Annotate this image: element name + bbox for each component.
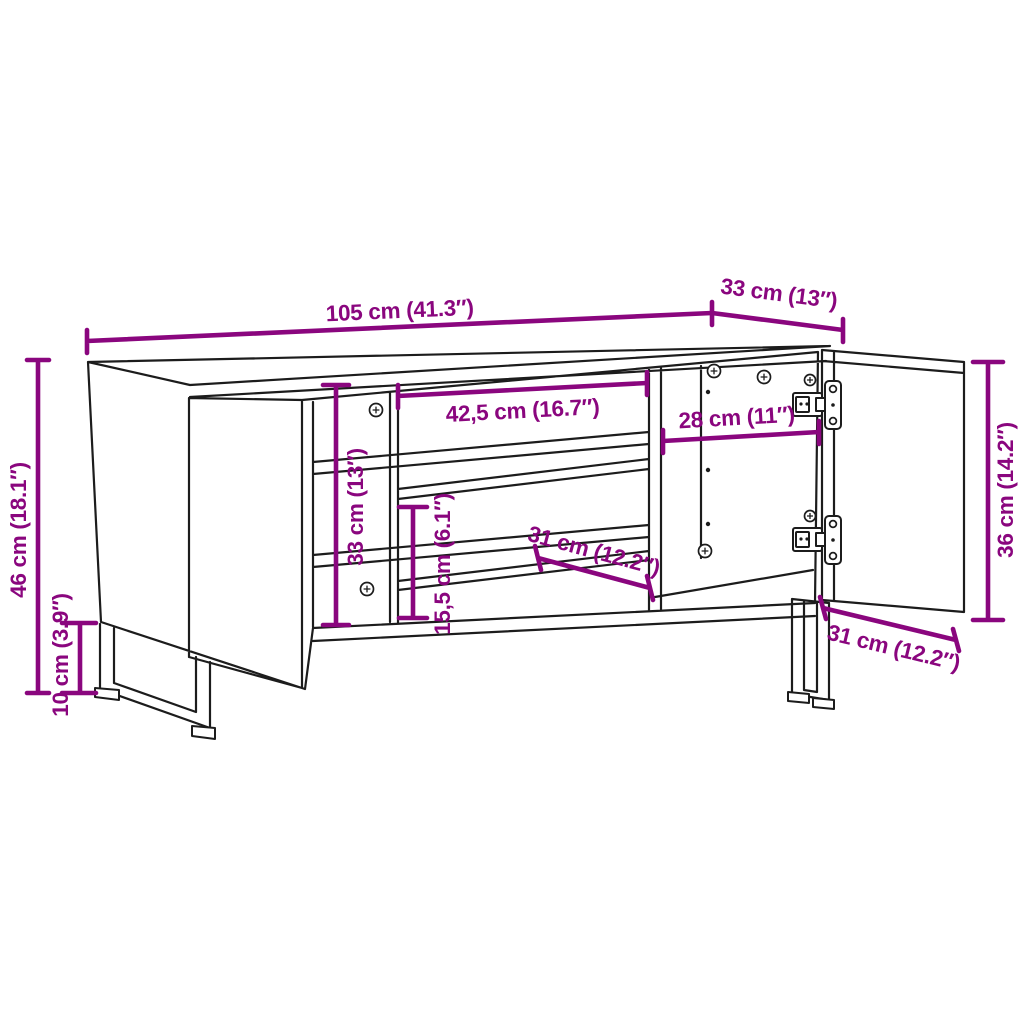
dimension-label: 33 cm (13″)	[719, 274, 839, 314]
right-leg-foot-pads	[788, 692, 834, 709]
dimension-line	[712, 313, 843, 342]
screw-icon	[805, 511, 816, 522]
dimension-shelf-depth: 31 cm (12.2″)	[525, 521, 663, 600]
dimension-label: 46 cm (18.1″)	[6, 462, 31, 598]
right-door-open	[822, 350, 964, 612]
furniture-dimension-diagram: 105 cm (41.3″) 33 cm (13″) 46 cm (18.1″)…	[0, 0, 1024, 1024]
dimension-label: 31 cm (12.2″)	[825, 620, 963, 676]
pilot-hole	[706, 522, 710, 526]
pilot-hole	[706, 468, 710, 472]
dimension-label: 28 cm (11″)	[678, 402, 796, 434]
diagram-canvas: 105 cm (41.3″) 33 cm (13″) 46 cm (18.1″)…	[0, 0, 1024, 1024]
screw-icon	[758, 371, 771, 384]
dimension-overall-height: 46 cm (18.1″)	[6, 360, 49, 693]
dimension-label: 105 cm (41.3″)	[325, 295, 474, 327]
dimension-label: 15,5 cm (6.1″)	[430, 493, 455, 635]
dimension-line	[399, 507, 427, 618]
screw-icon	[370, 404, 383, 417]
screw-icon	[708, 365, 721, 378]
dimension-door-height: 36 cm (14.2″)	[973, 362, 1018, 620]
dimension-overall-width: 105 cm (41.3″)	[87, 295, 712, 353]
pilot-hole	[706, 390, 710, 394]
screw-icon	[361, 583, 374, 596]
screw-icon	[805, 375, 816, 386]
left-leg	[95, 624, 215, 739]
dimension-label: 36 cm (14.2″)	[993, 422, 1018, 558]
dimension-label: 42,5 cm (16.7″)	[445, 394, 600, 427]
dimension-label: 10 cm (3.9″)	[48, 593, 73, 717]
screw-icon	[699, 545, 712, 558]
dimension-leg-height: 10 cm (3.9″)	[48, 593, 96, 717]
dimension-lower-compartment-height: 15,5 cm (6.1″)	[399, 493, 455, 635]
cabinet-outline	[88, 346, 830, 689]
dimension-overall-depth: 33 cm (13″)	[712, 274, 843, 342]
dimension-label: 33 cm (13″)	[343, 448, 368, 566]
dimension-door-width: 31 cm (12.2″)	[820, 597, 963, 676]
